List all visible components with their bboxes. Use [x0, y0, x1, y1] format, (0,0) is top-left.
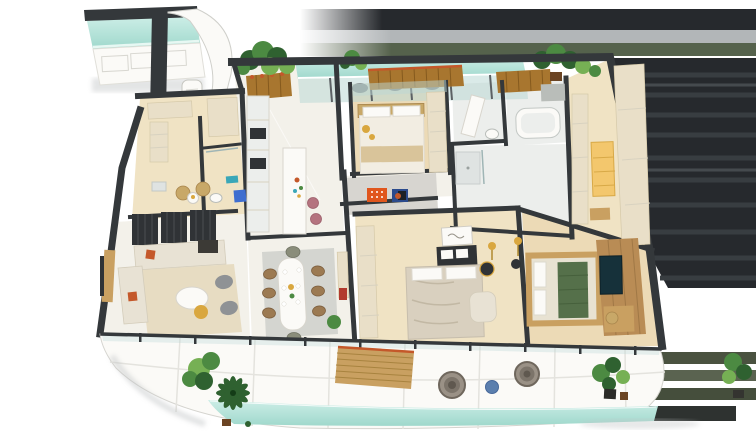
orange-pillow-2 — [128, 291, 138, 301]
wardrobe-left-run — [572, 94, 588, 224]
foyer-cabinet-row — [148, 101, 193, 119]
pendant-lamp-1 — [362, 125, 370, 133]
bathtub-interior — [521, 112, 556, 133]
teal-towel-stack — [226, 175, 239, 183]
sofa-side-table — [198, 240, 218, 253]
glowing-wardrobe-cabinet — [591, 142, 615, 197]
floor-lamp-shade — [488, 242, 496, 250]
pendant-lamp-2 — [369, 134, 375, 140]
teapot — [191, 195, 195, 199]
desk-chair — [606, 312, 618, 324]
backdrop-band-green — [300, 43, 756, 56]
hallway-wall-face — [344, 173, 438, 215]
blue-art-orange-blob — [395, 193, 401, 199]
bed-3-pillow-2 — [393, 106, 420, 116]
storage-cabinet — [207, 97, 239, 137]
bath-vanity — [541, 84, 566, 102]
bed-2-pillow-1 — [412, 267, 442, 280]
oven-appliance — [250, 128, 266, 139]
timber-daybed — [335, 347, 414, 389]
wall-tv — [100, 256, 104, 296]
balcony — [100, 333, 752, 429]
gold-pouf — [194, 305, 208, 319]
blue-pouf — [486, 381, 499, 394]
bed-3 — [359, 114, 424, 173]
balcony-edge-shadow-right — [580, 419, 700, 429]
master-pillow-2 — [534, 290, 546, 315]
orange-art-piece — [367, 188, 387, 202]
slatted-screen-panels — [132, 210, 216, 245]
round-side-table — [480, 262, 494, 276]
wash-basin — [152, 182, 166, 191]
master-side-table — [511, 259, 521, 269]
framed-script-artwork — [441, 226, 472, 246]
bedroom-2-wardrobe — [356, 226, 378, 339]
dining-plant — [327, 315, 341, 329]
floorplan-render — [0, 0, 756, 431]
wicker-chair-2 — [515, 362, 539, 386]
master-gold-lamp — [514, 237, 522, 245]
backdrop-band-dark — [300, 9, 756, 30]
bench-cushion-1 — [441, 250, 453, 260]
microwave-appliance — [250, 158, 266, 169]
blue-laundry-bin — [233, 189, 246, 202]
bar-stool-2 — [311, 214, 322, 225]
wicker-chair-1 — [439, 372, 465, 398]
tea-chair-right — [196, 182, 210, 196]
bed-3-pillow-1 — [363, 107, 390, 117]
pantry-shelving — [150, 122, 168, 162]
bed-2-pillow-2 — [446, 266, 476, 279]
backdrop-band-gray — [300, 30, 756, 43]
master-pillow-1 — [534, 262, 546, 287]
guest-toilet — [210, 194, 222, 203]
bed-3-throw — [361, 145, 423, 162]
red-artwork — [339, 288, 347, 300]
bench-cushion-2 — [456, 249, 468, 259]
centerpiece-greenery — [290, 294, 295, 299]
television — [600, 256, 623, 294]
wardrobe-bench — [590, 208, 610, 221]
bar-stool-1 — [308, 198, 319, 209]
lounge-chair — [469, 291, 497, 322]
orange-pillow-1 — [145, 249, 155, 259]
floorplan-canvas — [0, 0, 756, 431]
toilet-2 — [486, 129, 499, 139]
shower-drain — [467, 167, 470, 170]
table-centerpiece — [288, 284, 294, 290]
